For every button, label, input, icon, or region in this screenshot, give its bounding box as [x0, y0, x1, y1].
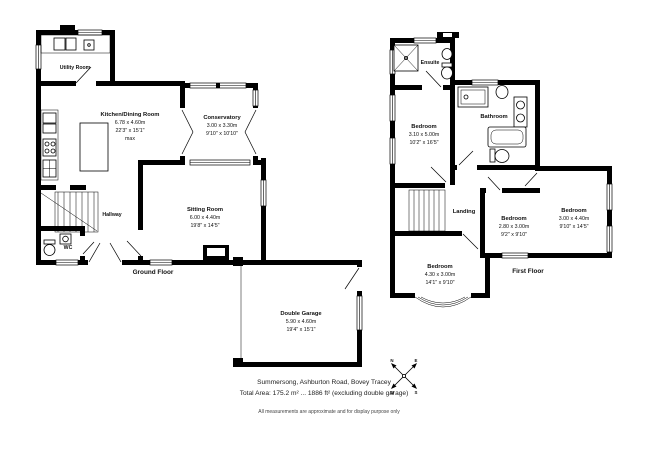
utility-counter-icon	[41, 35, 110, 53]
shower-icon	[458, 87, 488, 107]
sink-icon	[496, 86, 508, 99]
bathroom-label: Bathroom	[480, 114, 507, 120]
room-ensuite: Ensuite	[421, 60, 440, 66]
kitchen-note: max	[125, 136, 135, 142]
room-wc: WC	[64, 245, 73, 251]
ground-floor-title: Ground Floor	[133, 269, 174, 276]
bedroom-right-metric: 3.00 x 4.40m	[559, 216, 590, 222]
ensuite-label: Ensuite	[421, 60, 440, 66]
garage-label: Double Garage	[280, 311, 322, 317]
room-bedroom-right: Bedroom 3.00 x 4.40m 9'10" x 14'5"	[559, 208, 590, 230]
kitchen-island-icon	[80, 123, 108, 171]
compass-east-label: E	[415, 358, 418, 363]
sink-icon	[442, 49, 452, 60]
kitchen-metric: 6.78 x 4.60m	[115, 120, 146, 126]
room-utility: Utility Room	[60, 65, 91, 71]
room-sitting: Sitting Room 6.00 x 4.40m 19'8" x 14'5"	[187, 207, 223, 229]
disclaimer-text: All measurements are approximate and for…	[258, 409, 400, 415]
bedroom-master-label: Bedroom	[411, 124, 436, 130]
bedroom-front-metric: 4.30 x 3.00m	[425, 272, 456, 278]
bedroom-front-label: Bedroom	[427, 264, 452, 270]
room-kitchen: Kitchen/Dining Room 6.78 x 4.60m 22'3" x…	[101, 112, 160, 142]
bedroom-master-metric: 3.10 x 5.00m	[409, 132, 440, 138]
room-bedroom-middle: Bedroom 2.80 x 3.00m 9'2" x 9'10"	[499, 216, 530, 238]
utility-label: Utility Room	[60, 65, 91, 71]
room-bedroom-front: Bedroom 4.30 x 3.00m 14'1" x 9'10"	[425, 264, 456, 286]
ground-floor-plan: Utility Room Kitchen/Dining Room 6.78 x …	[36, 25, 362, 367]
room-conservatory: Conservatory 3.00 x 3.30m 9'10" x 10'10"	[203, 115, 241, 137]
bedroom-middle-metric: 2.80 x 3.00m	[499, 224, 530, 230]
room-bedroom-master: Bedroom 3.10 x 5.00m 10'2" x 16'5"	[409, 124, 440, 146]
room-garage: Double Garage 5.90 x 4.60m 19'4" x 15'1"	[233, 257, 362, 367]
floorplan-canvas: Utility Room Kitchen/Dining Room 6.78 x …	[0, 0, 650, 450]
first-floor-title: First Floor	[512, 268, 544, 275]
sitting-metric: 6.00 x 4.40m	[190, 215, 221, 221]
stairs-icon	[409, 190, 445, 231]
landing-label: Landing	[453, 209, 476, 215]
bedroom-right-imperial: 9'10" x 14'5"	[559, 224, 588, 230]
toilet-icon	[442, 63, 453, 79]
floorplan-page: Utility Room Kitchen/Dining Room 6.78 x …	[0, 0, 650, 450]
radiator-icon	[514, 97, 527, 127]
bedroom-middle-label: Bedroom	[501, 216, 526, 222]
room-hallway: Hallway	[102, 212, 121, 218]
kitchen-counter-icon	[41, 110, 58, 180]
bay-window-icon	[415, 297, 471, 307]
fireplace-icon	[203, 245, 229, 260]
wc-label: WC	[64, 245, 73, 251]
address-text: Summersong, Ashburton Road, Bovey Tracey	[257, 379, 391, 386]
shower-icon	[394, 45, 418, 71]
toilet-icon	[490, 149, 509, 163]
sitting-imperial: 19'8" x 14'5"	[190, 223, 219, 229]
conservatory-label: Conservatory	[203, 115, 241, 121]
sitting-label: Sitting Room	[187, 207, 223, 213]
bathtub-icon	[488, 127, 526, 147]
compass-north-label: N	[390, 358, 393, 363]
bedroom-middle-imperial: 9'2" x 9'10"	[501, 232, 527, 238]
total-area-text: Total Area: 175.2 m² ... 1886 ft² (exclu…	[240, 390, 409, 397]
bedroom-master-imperial: 10'2" x 16'5"	[409, 140, 438, 146]
conservatory-imperial: 9'10" x 10'10"	[206, 131, 238, 137]
first-floor-plan: Ensuite Bedroom 3.10 x 5.00m 10'2" x 16'…	[390, 32, 612, 307]
kitchen-imperial: 22'3" x 15'1"	[115, 128, 144, 134]
conservatory-metric: 3.00 x 3.30m	[207, 123, 238, 129]
bedroom-front-imperial: 14'1" x 9'10"	[425, 280, 454, 286]
room-bathroom: Bathroom	[480, 114, 507, 120]
compass-south-label: S	[415, 390, 418, 395]
garage-metric: 5.90 x 4.60m	[286, 319, 317, 325]
hallway-label: Hallway	[102, 212, 121, 218]
garage-imperial: 19'4" x 15'1"	[286, 327, 315, 333]
kitchen-label: Kitchen/Dining Room	[101, 112, 160, 118]
room-landing: Landing	[453, 209, 476, 215]
bedroom-right-label: Bedroom	[561, 208, 586, 214]
footer: Summersong, Ashburton Road, Bovey Tracey…	[240, 379, 409, 415]
